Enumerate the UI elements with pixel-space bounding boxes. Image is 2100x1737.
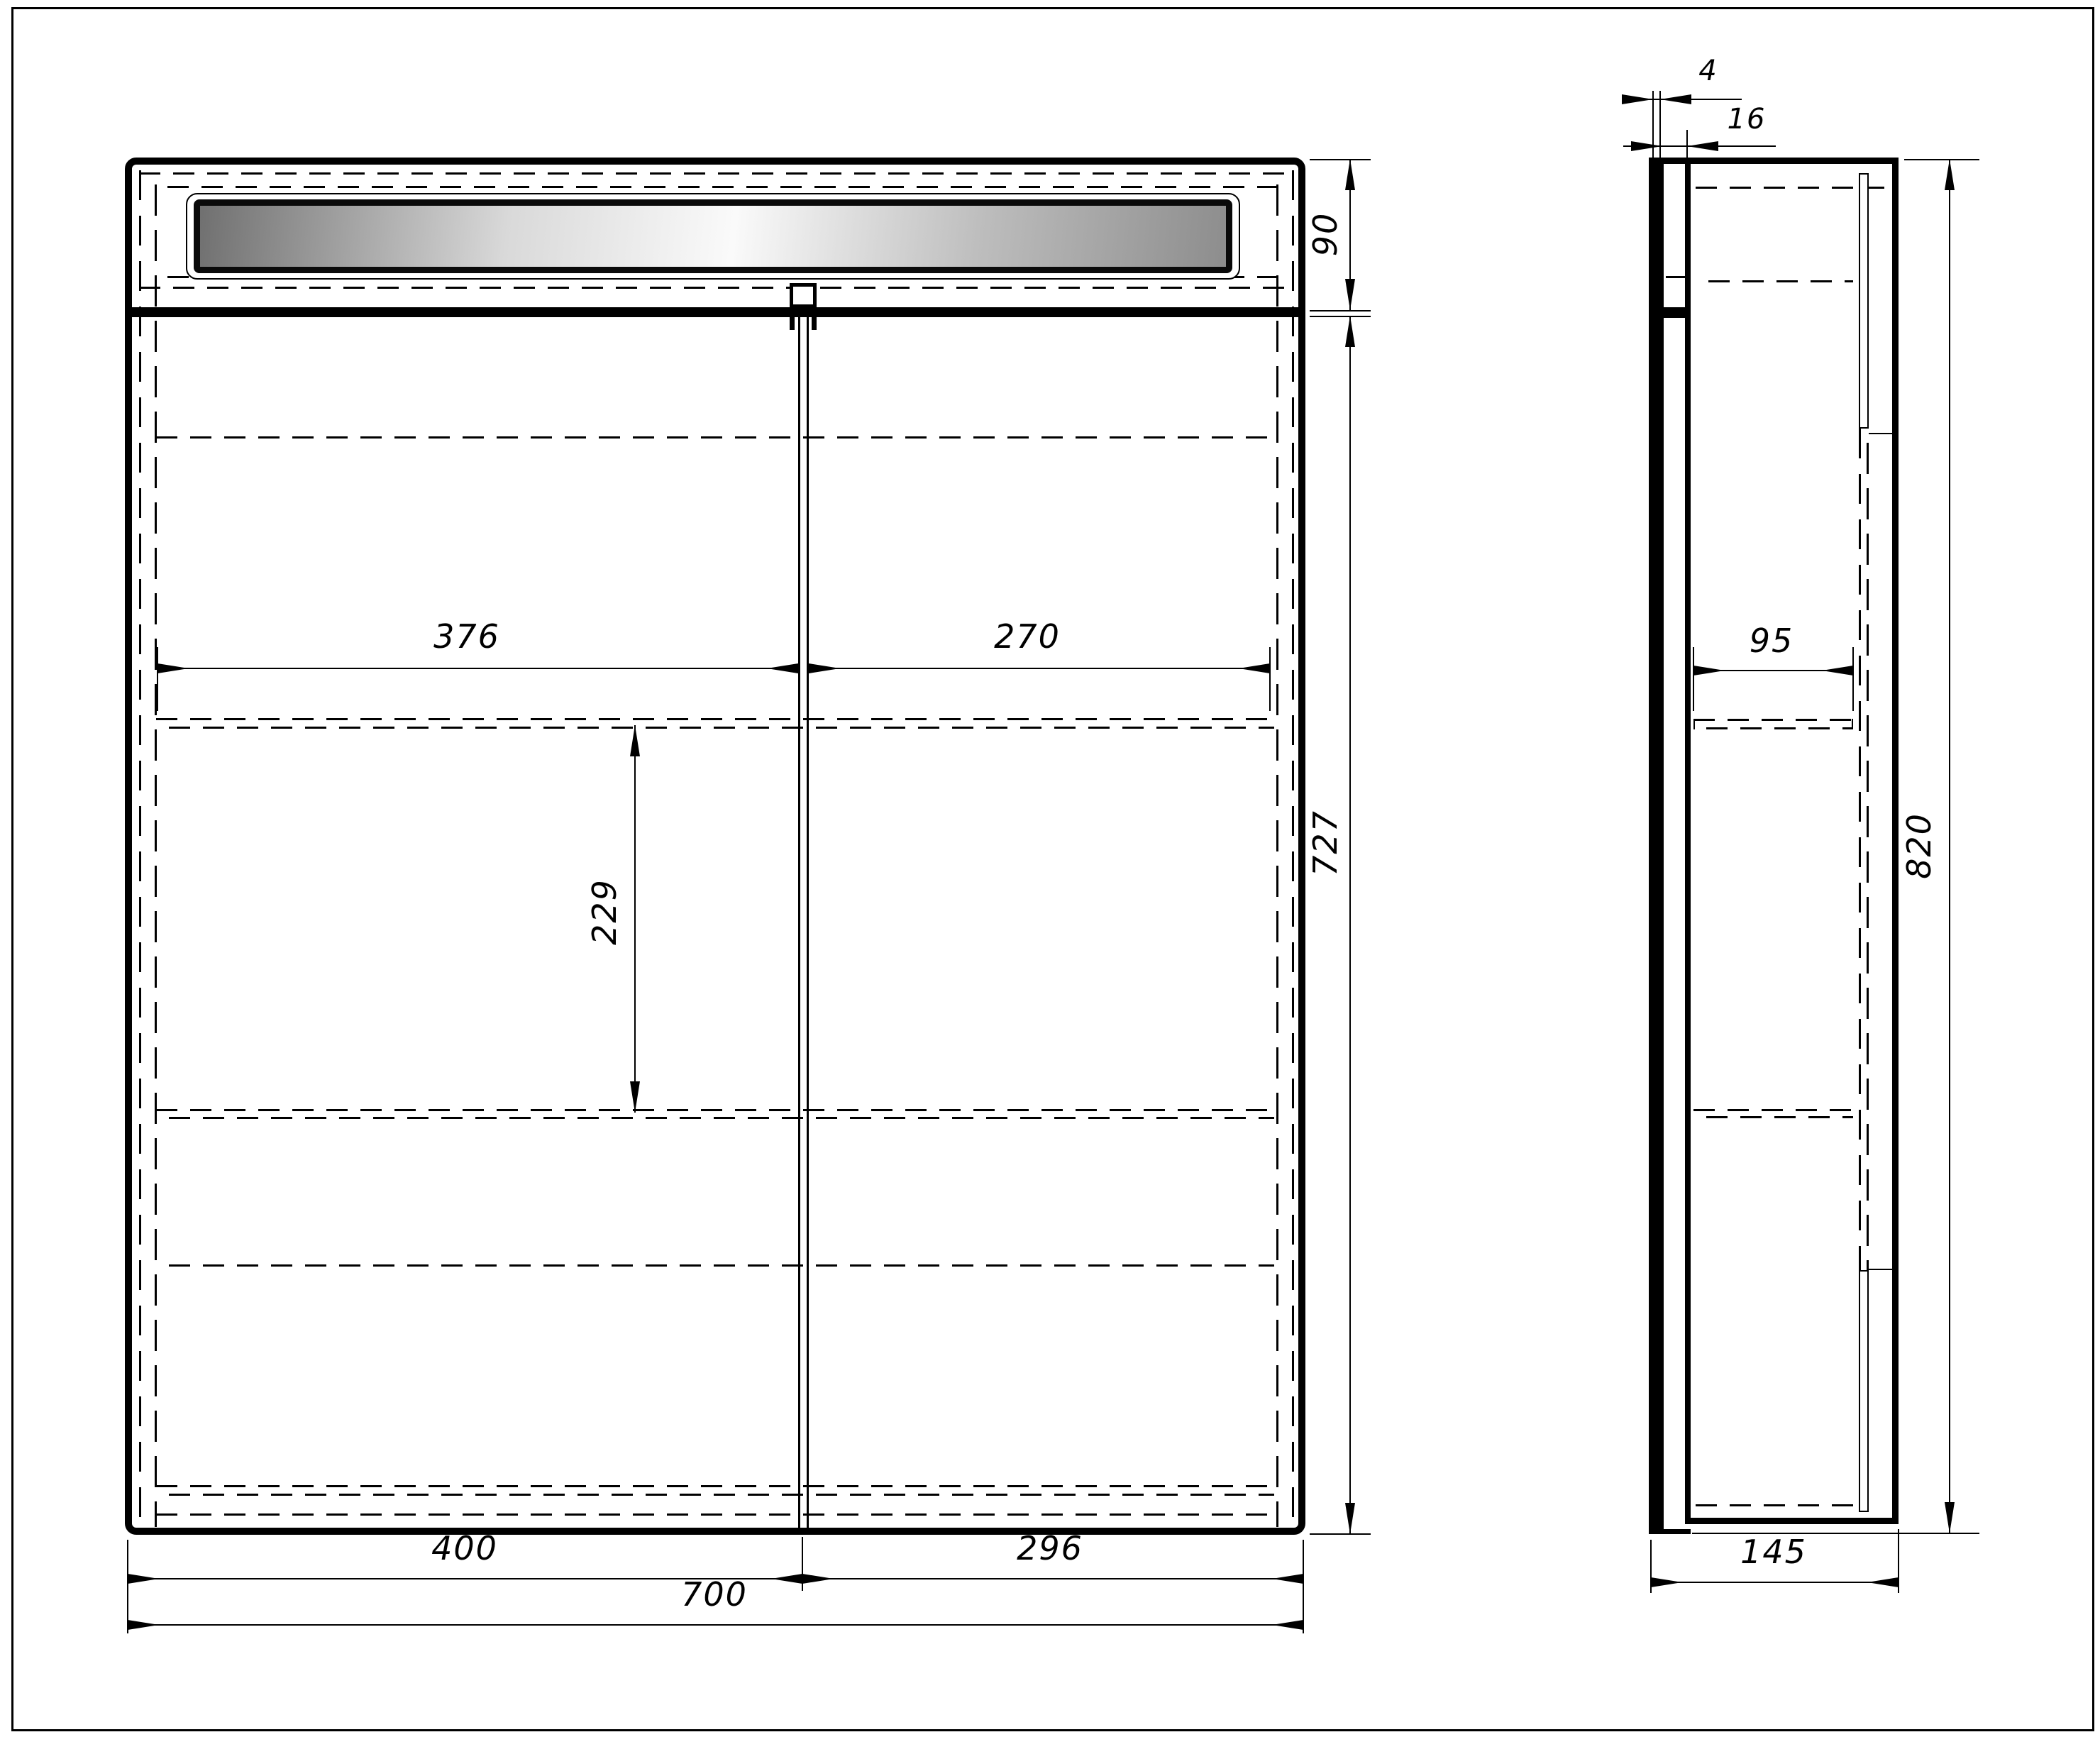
ext-line-95r bbox=[1852, 647, 1854, 711]
dim-label-95: 95 bbox=[1750, 622, 1794, 660]
side-carcass-front-edge bbox=[1685, 158, 1691, 1524]
arrowhead bbox=[809, 663, 840, 673]
side-hidden-top bbox=[1696, 187, 1884, 189]
hidden-line-lamp-bottom-2 bbox=[139, 287, 1293, 289]
ext-line-divider-a bbox=[1310, 310, 1371, 311]
arrowhead bbox=[1345, 279, 1355, 310]
dim-label-229: 229 bbox=[585, 878, 624, 945]
side-shelf-2a bbox=[1693, 719, 1853, 721]
side-shelf-3a bbox=[1693, 1109, 1853, 1111]
dim-line-376 bbox=[157, 668, 798, 669]
arrowhead bbox=[1239, 663, 1270, 673]
side-shelf-2b bbox=[1693, 727, 1853, 729]
dim-label-727: 727 bbox=[1306, 810, 1344, 876]
dim-line-727 bbox=[1349, 316, 1351, 1534]
side-shelf-cap-r bbox=[1852, 719, 1853, 729]
shelf-hidden-line-3b bbox=[156, 1117, 1274, 1119]
ext-line-divider-b bbox=[1310, 316, 1371, 317]
arrowhead bbox=[1945, 1502, 1955, 1533]
ext-line-820-bottom bbox=[1692, 1533, 1979, 1534]
back-panel-bottom-segment bbox=[1859, 1270, 1869, 1512]
side-divider-band bbox=[1649, 307, 1687, 318]
shelf-hidden-line-1 bbox=[156, 436, 1274, 439]
hidden-line-left-inner bbox=[155, 170, 157, 1527]
side-hidden-bottom bbox=[1696, 1504, 1855, 1506]
arrowhead bbox=[1345, 159, 1355, 190]
dim-label-376: 376 bbox=[433, 617, 500, 656]
dim-line-700 bbox=[128, 1624, 1303, 1626]
hidden-line-right-outer bbox=[1292, 170, 1294, 1527]
side-hidden-lamp bbox=[1696, 280, 1853, 282]
sheet-frame-left bbox=[11, 7, 13, 1731]
arrowhead bbox=[802, 1574, 834, 1584]
shelf-hidden-line-2a bbox=[156, 718, 1274, 720]
dim-label-700: 700 bbox=[681, 1575, 748, 1614]
side-door-line bbox=[1666, 276, 1685, 278]
shelf-hidden-line-3a bbox=[156, 1109, 1274, 1111]
arrowhead bbox=[630, 1081, 640, 1113]
arrowhead bbox=[767, 663, 798, 673]
arrowhead bbox=[157, 663, 189, 673]
led-light-bar bbox=[194, 199, 1232, 273]
back-panel-top-segment bbox=[1859, 173, 1869, 429]
arrowhead bbox=[128, 1620, 159, 1630]
dim-line-145 bbox=[1651, 1582, 1899, 1583]
technical-drawing-canvas: 376 270 229 90 727 400 296 700 bbox=[0, 0, 2100, 1737]
arrowhead bbox=[630, 725, 640, 756]
dim-label-16: 16 bbox=[1728, 103, 1767, 136]
sheet-frame-top bbox=[11, 7, 2094, 9]
arrowhead bbox=[1945, 159, 1955, 190]
back-panel-hidden-b bbox=[1867, 429, 1869, 1270]
arrowhead bbox=[1651, 1577, 1682, 1587]
dim-label-90: 90 bbox=[1306, 212, 1344, 257]
door-gap-right-edge bbox=[807, 317, 809, 1529]
bottom-hidden-line-a bbox=[156, 1485, 1274, 1487]
arrowhead bbox=[1822, 666, 1853, 675]
hidden-line-left-outer bbox=[139, 170, 141, 1527]
dim-label-820: 820 bbox=[1900, 812, 1938, 879]
side-mirror-pane bbox=[1649, 158, 1664, 1534]
arrowhead bbox=[1660, 94, 1691, 104]
dim-label-270: 270 bbox=[994, 617, 1061, 656]
dim-label-145: 145 bbox=[1740, 1533, 1807, 1571]
door-gap-left-edge bbox=[798, 317, 800, 1529]
hidden-line-top-1 bbox=[139, 172, 1293, 175]
side-door-bottom bbox=[1649, 1529, 1691, 1534]
arrowhead bbox=[1867, 1577, 1899, 1587]
ext-line-376-left bbox=[157, 647, 158, 711]
ext-line-270-right bbox=[1269, 647, 1271, 711]
arrowhead bbox=[1622, 94, 1653, 104]
dim-label-400: 400 bbox=[431, 1529, 498, 1567]
ext-line-95l bbox=[1693, 647, 1694, 711]
side-shelf-3b bbox=[1693, 1116, 1853, 1118]
rail-bottom-line bbox=[1869, 1269, 1892, 1270]
rail-hidden-line bbox=[156, 1264, 1274, 1267]
dim-line-270 bbox=[809, 668, 1270, 669]
back-panel-hidden-a bbox=[1859, 429, 1861, 1270]
dim-line-296 bbox=[802, 1578, 1303, 1579]
center-clip bbox=[790, 283, 817, 308]
bottom-hidden-line-c bbox=[156, 1513, 1274, 1516]
front-cabinet-outline bbox=[125, 158, 1305, 1535]
sheet-frame-right bbox=[2092, 7, 2094, 1731]
shelf-hidden-line-2b bbox=[156, 727, 1274, 729]
arrowhead bbox=[1345, 316, 1355, 347]
sheet-frame-bottom bbox=[11, 1729, 2094, 1731]
side-carcass-bottom-edge bbox=[1685, 1518, 1899, 1524]
arrowhead bbox=[128, 1574, 159, 1584]
arrowhead bbox=[1631, 141, 1662, 151]
dim-label-296: 296 bbox=[1017, 1529, 1083, 1567]
side-shelf-cap-l bbox=[1693, 719, 1695, 729]
arrowhead bbox=[1272, 1620, 1303, 1630]
arrowhead bbox=[1345, 1503, 1355, 1534]
rail-top-line bbox=[1869, 433, 1892, 434]
dim-line-820 bbox=[1949, 159, 1950, 1534]
side-carcass-back-edge bbox=[1892, 158, 1899, 1524]
door-top-mark-right bbox=[812, 317, 817, 330]
dim-line-229 bbox=[634, 725, 636, 1113]
bottom-hidden-line-b bbox=[156, 1494, 1274, 1496]
arrowhead bbox=[1687, 141, 1718, 151]
arrowhead bbox=[1272, 1574, 1303, 1584]
hidden-line-top-2 bbox=[155, 186, 1277, 188]
ext-line-820-top bbox=[1904, 159, 1979, 160]
hidden-line-right-inner bbox=[1276, 170, 1278, 1527]
arrowhead bbox=[1693, 666, 1725, 675]
door-top-mark-left bbox=[790, 317, 795, 330]
ext-line-bottom bbox=[1310, 1533, 1371, 1535]
front-divider bbox=[132, 307, 1298, 317]
ext-line-top bbox=[1310, 159, 1371, 160]
arrowhead bbox=[771, 1574, 802, 1584]
dim-label-4: 4 bbox=[1698, 55, 1718, 87]
